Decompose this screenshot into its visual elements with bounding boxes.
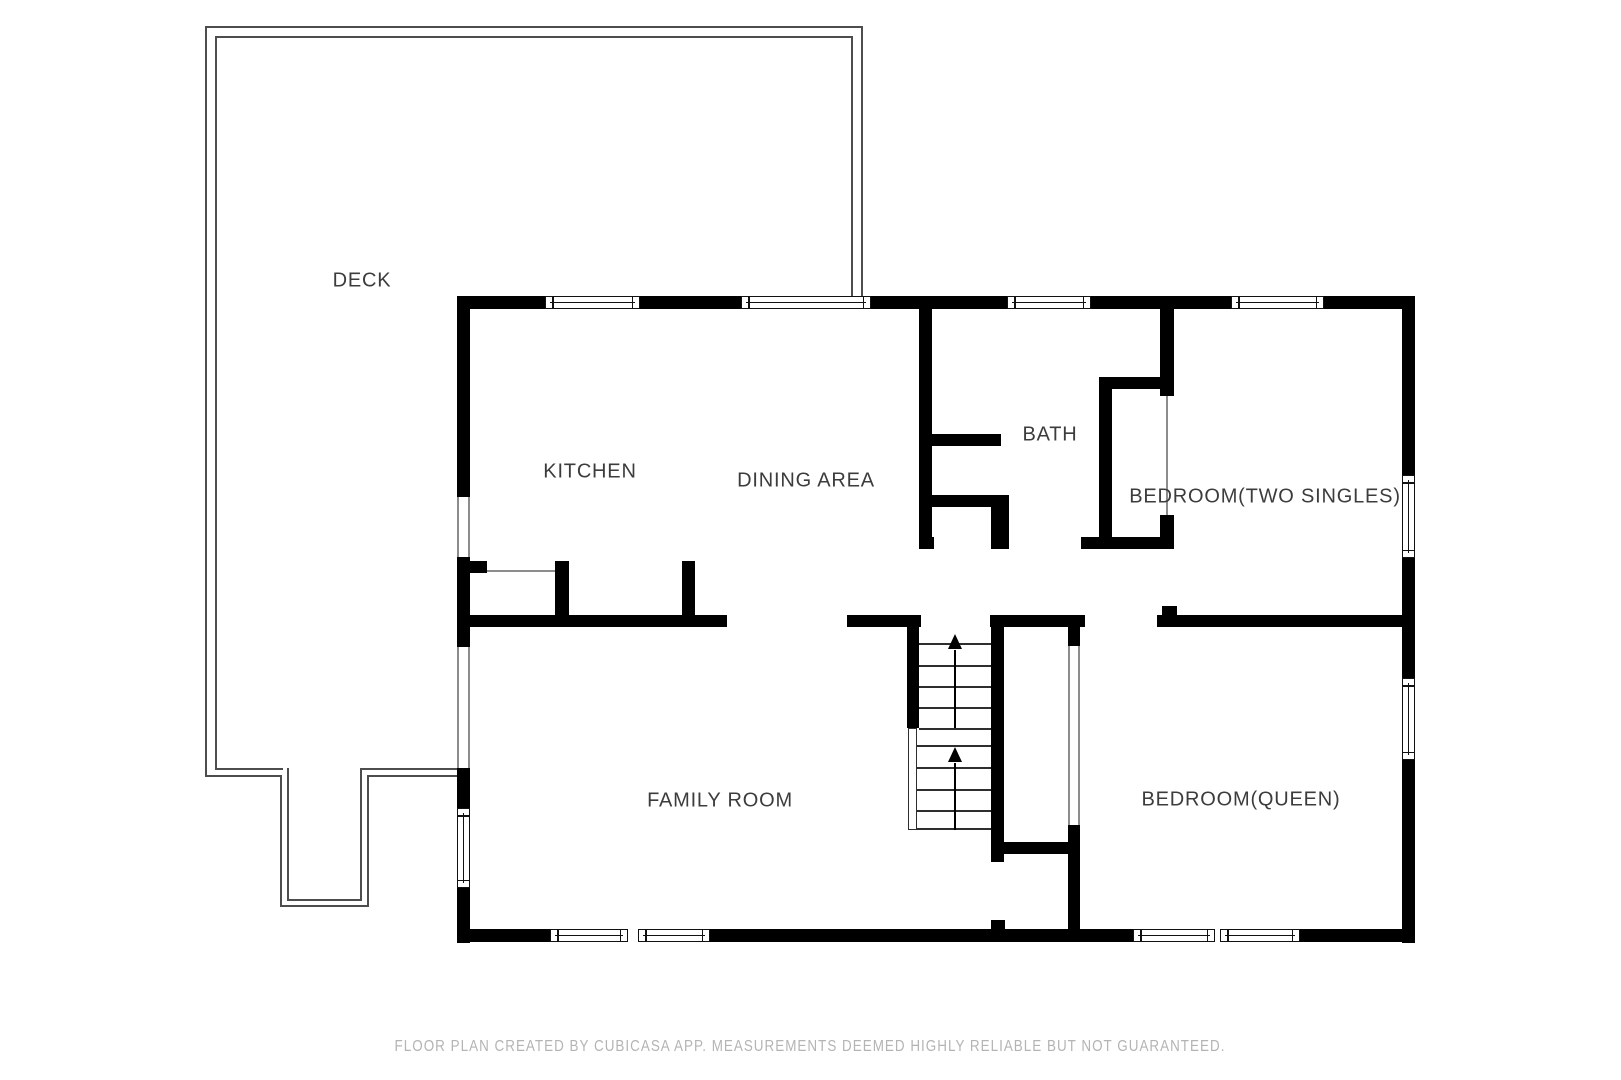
wall-segment	[907, 627, 919, 728]
window-frame-cap	[557, 930, 559, 941]
room-label-deck: DECK	[333, 270, 392, 293]
wall-segment	[990, 615, 1085, 627]
window-symbol	[1133, 929, 1215, 942]
door-opening-line	[1078, 646, 1080, 825]
wall-segment	[457, 296, 545, 309]
wall-segment	[1099, 377, 1112, 549]
deck-outline-line	[205, 26, 207, 777]
window-frame-cap	[458, 815, 469, 817]
window-symbol	[1007, 296, 1091, 309]
deck-outline-line	[367, 775, 459, 777]
wall-segment	[555, 561, 569, 627]
window-frame-cap	[1083, 297, 1085, 308]
wall-segment	[1162, 606, 1177, 615]
deck-outline-line	[215, 768, 283, 770]
wall-segment	[991, 615, 1004, 862]
wall-segment	[1402, 760, 1415, 943]
deck-outline-line	[205, 775, 282, 777]
wall-segment	[1091, 296, 1231, 309]
wall-segment	[457, 929, 550, 942]
window-symbol	[1220, 929, 1300, 942]
window-frame-cap	[620, 930, 622, 941]
stair-tread	[919, 728, 991, 730]
wall-segment	[1300, 929, 1415, 942]
window-frame-cap	[1403, 752, 1414, 754]
window-frame-cap	[1227, 930, 1229, 941]
room-label-bath: BATH	[1022, 424, 1077, 447]
wall-segment	[919, 495, 1001, 507]
window-frame-cap	[1403, 550, 1414, 552]
window-frame-cap	[1403, 685, 1414, 687]
door-opening-line	[468, 647, 470, 768]
room-label-family-room: FAMILY ROOM	[647, 790, 793, 813]
wall-segment	[1068, 825, 1080, 942]
window-symbol	[545, 296, 640, 309]
window-glass-line	[555, 935, 623, 937]
door-opening-line	[457, 647, 459, 768]
window-glass-line	[1012, 302, 1086, 304]
wall-segment	[871, 296, 1007, 309]
up-arrow-icon	[948, 747, 962, 762]
room-label-dining-area: DINING AREA	[737, 470, 875, 493]
wall-segment	[1068, 627, 1080, 646]
window-glass-line	[463, 813, 465, 883]
wall-segment	[1402, 296, 1415, 475]
stair-railing	[908, 728, 917, 830]
window-frame-cap	[702, 930, 704, 941]
window-glass-line	[550, 302, 635, 304]
wall-segment	[991, 495, 1009, 549]
footer-disclaimer: FLOOR PLAN CREATED BY CUBICASA APP. MEAS…	[395, 1038, 1226, 1056]
window-frame-cap	[863, 297, 865, 308]
wall-segment	[457, 768, 470, 808]
deck-outline-line	[851, 36, 853, 298]
window-frame-cap	[1292, 930, 1294, 941]
deck-outline-line	[367, 775, 369, 907]
window-frame-cap	[632, 297, 634, 308]
room-label-bedroom-two-singles: BEDROOM(TWO SINGLES)	[1129, 486, 1401, 509]
room-label-kitchen: KITCHEN	[543, 461, 636, 484]
deck-outline-line	[861, 26, 863, 298]
wall-segment	[640, 296, 741, 309]
stair-direction-arrow-stem	[954, 763, 956, 830]
wall-segment	[991, 920, 1005, 930]
wall-segment	[919, 537, 934, 549]
wall-segment	[1157, 615, 1415, 627]
window-frame-cap	[748, 297, 750, 308]
window-frame-cap	[1014, 297, 1016, 308]
window-symbol	[638, 929, 710, 942]
window-glass-line	[746, 302, 866, 304]
deck-outline-line	[215, 36, 853, 38]
deck-outline-line	[287, 899, 362, 901]
deck-outline-line	[215, 36, 217, 770]
window-symbol	[1402, 475, 1415, 558]
wall-segment	[1160, 515, 1174, 549]
wall-segment	[919, 434, 1001, 446]
window-frame-cap	[1403, 482, 1414, 484]
wall-segment	[470, 561, 487, 573]
stair-direction-arrow-stem	[954, 650, 956, 728]
window-symbol	[741, 296, 871, 309]
window-frame-cap	[1316, 297, 1318, 308]
window-glass-line	[1408, 480, 1410, 553]
window-symbol	[1402, 678, 1415, 760]
wall-segment	[1160, 309, 1174, 396]
window-frame-cap	[458, 880, 469, 882]
wall-segment	[1002, 842, 1073, 854]
wall-segment	[919, 309, 932, 549]
wall-segment	[457, 296, 470, 497]
window-glass-line	[643, 935, 705, 937]
window-frame-cap	[552, 297, 554, 308]
deck-outline-line	[287, 768, 289, 901]
wall-segment	[682, 561, 695, 627]
window-symbol	[550, 929, 628, 942]
window-frame-cap	[1140, 930, 1142, 941]
window-symbol	[457, 808, 470, 888]
door-opening-line	[1068, 646, 1070, 825]
room-label-bedroom-queen: BEDROOM(QUEEN)	[1142, 789, 1341, 812]
window-frame-cap	[1238, 297, 1240, 308]
up-arrow-icon	[948, 634, 962, 649]
window-symbol	[1231, 296, 1324, 309]
deck-outline-line	[280, 775, 282, 907]
deck-outline-line	[205, 26, 863, 28]
door-opening-line	[487, 570, 555, 572]
window-glass-line	[1138, 935, 1210, 937]
window-frame-cap	[1207, 930, 1209, 941]
wall-segment	[847, 615, 921, 627]
door-opening-line	[457, 497, 459, 557]
door-opening-line	[468, 497, 470, 557]
window-glass-line	[1408, 683, 1410, 755]
deck-outline-line	[280, 905, 369, 907]
window-frame-cap	[645, 930, 647, 941]
deck-outline-line	[360, 768, 459, 770]
window-glass-line	[1236, 302, 1319, 304]
wall-segment	[457, 557, 470, 647]
window-glass-line	[1225, 935, 1295, 937]
deck-outline-line	[360, 768, 362, 901]
floor-plan: DECKKITCHENDINING AREABATHBEDROOM(TWO SI…	[0, 0, 1621, 1080]
